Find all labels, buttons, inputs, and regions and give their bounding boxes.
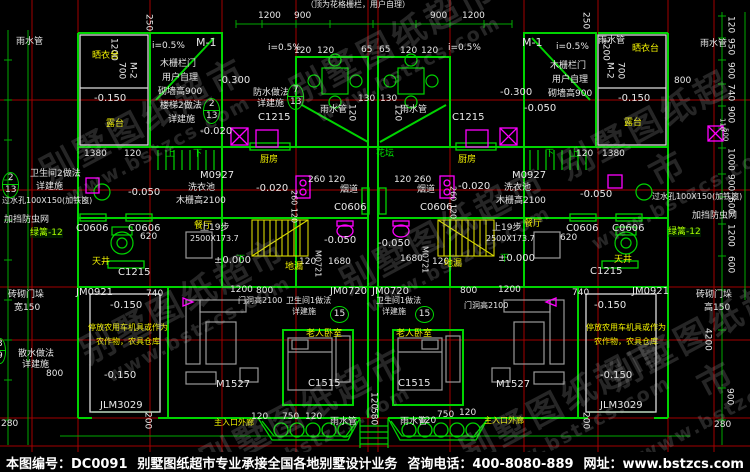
cad-label: -0.150 [104, 371, 136, 382]
cad-label: 砖砌门垛 [8, 291, 44, 300]
cad-label: C1515 [398, 379, 430, 390]
website-url: 网址：www.bstzcs.com [583, 453, 744, 472]
cad-label: 740 [146, 290, 163, 299]
cad-label: 上 [166, 150, 175, 159]
cad-label: 花坛 [376, 150, 394, 159]
cad-label: 65 [361, 46, 372, 55]
cad-label: 老人卧室 [306, 330, 342, 339]
cad-label: 雨水管 [700, 40, 727, 49]
cad-label: 1000 [725, 148, 734, 171]
service-slogan: 别墅图纸超市专业承接全国各地别墅设计业务 [137, 453, 397, 472]
cad-label: 620 [560, 234, 577, 243]
cad-label: 900 [725, 62, 734, 79]
cad-label: 厨房 [260, 156, 278, 165]
cad-label: 1200 [230, 286, 253, 295]
cad-label: 绿篱-12 [668, 228, 701, 237]
cad-label: 详建施 [168, 116, 195, 125]
cad-label: 砌墙高900 [158, 88, 202, 97]
cad-label: 1380 [84, 150, 107, 159]
cad-label: 晒衣台 [92, 52, 119, 61]
cad-label: 洗衣池 [188, 184, 215, 193]
cad-label: 700 [615, 62, 624, 79]
cad-label: 120 [725, 16, 734, 33]
phone-number: 咨询电话：400-8080-889 [407, 453, 573, 472]
cad-label: 停放农用车机具或作为 [88, 324, 168, 332]
cad-label: 地漏 [444, 260, 462, 269]
cad-label: 停放农用车机具或作为 [586, 324, 666, 332]
cad-label: 下 [500, 255, 509, 264]
cad-label: 下 [236, 256, 245, 265]
cad-label: 250 [143, 14, 152, 31]
cad-label: 上19步 [200, 224, 229, 233]
cad-label: 620 [140, 233, 157, 242]
cad-label: （顶为花格栅栏，用户自理） [306, 1, 410, 9]
cad-label: ±0.000 [214, 256, 251, 267]
floorplan-canvas: （顶为花格栅栏，用户自理）12009009001200雨水管雨水管雨水管M-1M… [0, 0, 750, 452]
cad-label: JM0921 [76, 288, 113, 299]
cad-label: 280 [1, 420, 18, 429]
cad-label: -0.050 [128, 188, 160, 199]
cad-label: -0.020 [458, 182, 490, 193]
cad-label: 上19步 [492, 224, 521, 233]
cad-label: 65 [379, 46, 390, 55]
cad-label: 120 [421, 47, 438, 56]
cad-label: -0.050 [524, 104, 556, 115]
cad-label: 详建施 [382, 308, 406, 316]
cad-label: 门洞高2100 [238, 297, 282, 305]
cad-label: C0606 [612, 224, 644, 235]
cad-label: 580 [368, 408, 377, 425]
sheet-number: 本图编号：DC0091 [6, 453, 128, 472]
cad-label: M0927 [200, 171, 234, 182]
cad-label: -0.150 [618, 94, 650, 105]
cad-label: 详建施 [36, 183, 63, 192]
cad-label: M0721 [420, 246, 428, 273]
cad-label: 1680 [328, 258, 351, 267]
cad-label: 农作物，农具仓库 [96, 338, 160, 346]
cad-label: 烟道 [417, 186, 435, 195]
cad-label: 740 [725, 84, 734, 101]
cad-label: 200 [580, 412, 589, 429]
cad-label: 木栅栏门 [550, 62, 586, 71]
cad-label: 雨水管 [330, 418, 357, 427]
cad-label: 120 [124, 150, 141, 159]
cad-label: 900 [430, 12, 447, 21]
cad-label: 1200 [258, 12, 281, 21]
cad-label: -0.150 [600, 371, 632, 382]
cad-label: 雨水管 [400, 106, 427, 115]
cad-label: 雨水管 [16, 38, 43, 47]
cad-label: C1515 [308, 379, 340, 390]
cad-label: M-1 [196, 37, 216, 49]
cad-label: C0606 [420, 203, 452, 214]
cad-label: 900 [294, 12, 311, 21]
cad-label: 120 [459, 409, 476, 418]
cad-label: 用户自理 [552, 76, 588, 85]
cad-label: 900 [725, 174, 734, 191]
cad-label: 木栅栏门 [160, 60, 196, 69]
cad-label: M1527 [496, 380, 530, 391]
cad-label: i=0.5% [556, 43, 589, 52]
cad-label: 详建施 [292, 308, 316, 316]
cad-label: 砌墙高900 [548, 90, 592, 99]
cad-label: 1200 [462, 12, 485, 21]
cad-label: 晒衣台 [632, 45, 659, 54]
stairs [252, 220, 494, 256]
cad-label: C1215 [258, 113, 290, 124]
cad-label: 1200 [600, 38, 609, 61]
cad-label: 800 [674, 77, 691, 86]
cad-label: -0.050 [580, 190, 612, 201]
cad-label: 120 [294, 47, 311, 56]
cad-label: 上 [570, 150, 579, 159]
cad-label: 砖砌门垛 [696, 291, 732, 300]
cad-label: 800 [46, 370, 63, 379]
cad-label: 厨房 [458, 156, 476, 165]
cad-label: 主入口外廊 [484, 417, 524, 425]
cad-label: 500 [721, 128, 728, 141]
cad-label: C1215 [590, 267, 622, 278]
cad-label: -0.050 [324, 236, 356, 247]
cad-label: 卫生间1做法 [286, 297, 331, 305]
cad-label: JLM3029 [100, 401, 143, 412]
cad-label: 防水做法 [253, 89, 289, 98]
cad-label: 740 [572, 289, 589, 298]
cad-label: i=0.5% [152, 42, 185, 51]
cad-label: M0927 [512, 171, 546, 182]
cad-label: M-2 [127, 62, 136, 79]
cad-label: 洗衣池 [504, 184, 531, 193]
cad-label: -0.150 [110, 301, 142, 312]
cad-label: 120 [400, 47, 417, 56]
detail-callout: 713 [287, 84, 304, 110]
detail-callout: 213 [2, 172, 19, 198]
cad-label: 烟道 [340, 186, 358, 195]
cad-label: 高150 [704, 304, 730, 313]
cad-label: -0.020 [256, 184, 288, 195]
cad-label: -0.150 [594, 301, 626, 312]
cad-label: 楼梯2做法 [160, 102, 202, 111]
cad-label: 2500X173.7 [486, 235, 535, 243]
cad-label: 天井 [92, 258, 110, 267]
cad-label: 散水做法 [18, 350, 54, 359]
cad-label: 800 [460, 287, 477, 296]
cad-label: 120 [368, 392, 377, 409]
cad-label: 用户自理 [162, 74, 198, 83]
cad-label: 950 [725, 38, 734, 55]
cad-label: -0.050 [378, 239, 410, 250]
cad-label: 4200 [702, 328, 711, 351]
cad-label: -0.150 [94, 94, 126, 105]
cad-label: C0606 [334, 203, 366, 214]
cad-label: 下 [545, 150, 554, 159]
cad-label: 1200 [498, 286, 521, 295]
cad-label: 120 [317, 47, 334, 56]
cad-label: M-2 [604, 62, 613, 79]
cad-label: 门洞高2100 [464, 302, 508, 310]
cad-label: 详建施 [22, 361, 49, 370]
cad-label: i=0.5% [448, 44, 481, 53]
cad-label: 900 [724, 388, 733, 405]
cad-label: 2500X173.7 [190, 235, 239, 243]
cad-label: 过水孔100X150(加铁篦) [2, 197, 92, 205]
cad-label: M0721 [313, 250, 321, 277]
cad-label: 加挡防虫网 [4, 216, 49, 225]
cad-label: 宽150 [14, 304, 40, 313]
cad-label: -0.020 [200, 127, 232, 138]
cad-label: 绿篱-12 [30, 229, 63, 238]
cad-label: C1215 [118, 268, 150, 279]
cad-label: 卫生间2做法 [30, 170, 81, 179]
cad-label: 详建施 [257, 100, 284, 109]
cad-label: 餐厅 [524, 220, 542, 229]
cad-label: 200 [142, 412, 151, 429]
cad-label: 250 [580, 12, 589, 29]
cad-label: C0606 [76, 224, 108, 235]
cad-label: 260 120 [289, 190, 297, 223]
cad-label: M1527 [216, 380, 250, 391]
cad-label: 露台 [624, 119, 642, 128]
green-fixtures [92, 54, 654, 448]
cad-label: 雨水管 [320, 106, 347, 115]
cad-label: 130 [358, 95, 375, 104]
cad-label: 120 260 [394, 176, 431, 185]
cad-label: 露台 [106, 120, 124, 129]
cad-viewer: （顶为花格栅栏，用户自理）12009009001200雨水管雨水管雨水管M-1M… [0, 0, 750, 472]
detail-callout: 15 [415, 306, 434, 323]
cad-label: 120 [346, 104, 355, 121]
status-bar: 本图编号：DC0091 别墅图纸超市专业承接全国各地别墅设计业务 咨询电话：40… [0, 452, 750, 472]
cad-label: 750 [282, 413, 299, 422]
cad-label: 120 [419, 417, 436, 426]
cad-label: 280 [714, 421, 731, 430]
cad-label: 1380 [602, 150, 625, 159]
cad-label: 120 [305, 413, 322, 422]
cad-label: 农作物，农具仓库 [594, 338, 658, 346]
cad-label: 600 [725, 256, 734, 273]
cad-label: 1200 [725, 224, 734, 247]
cad-label: -0.300 [218, 76, 250, 87]
cad-label: 700 [116, 62, 125, 79]
cad-label: 天井 [614, 256, 632, 265]
cad-label: 木栅高2100 [496, 197, 546, 206]
cad-label: JM0720 [330, 287, 367, 298]
cad-label: JM0921 [632, 287, 669, 298]
cad-label: 750 [437, 411, 454, 420]
cad-label: 老人卧室 [396, 330, 432, 339]
cad-label: C1215 [452, 113, 484, 124]
cad-label: 900 [725, 106, 734, 123]
cad-label: 卫生间1做法 [376, 297, 421, 305]
detail-callout: 15 [330, 306, 349, 323]
cad-label: 木栅高2100 [176, 197, 226, 206]
cad-label: 主入口外廊 [214, 419, 254, 427]
cad-label: 下 [193, 150, 202, 159]
cad-label: -0.300 [500, 88, 532, 99]
detail-callout: 213 [203, 98, 220, 124]
cad-label: 地漏 [285, 263, 303, 272]
cad-label: M-1 [522, 37, 542, 49]
cad-label: 260 120 [308, 176, 345, 185]
cad-label: JLM3029 [600, 401, 643, 412]
cad-label: 600 [725, 197, 734, 214]
